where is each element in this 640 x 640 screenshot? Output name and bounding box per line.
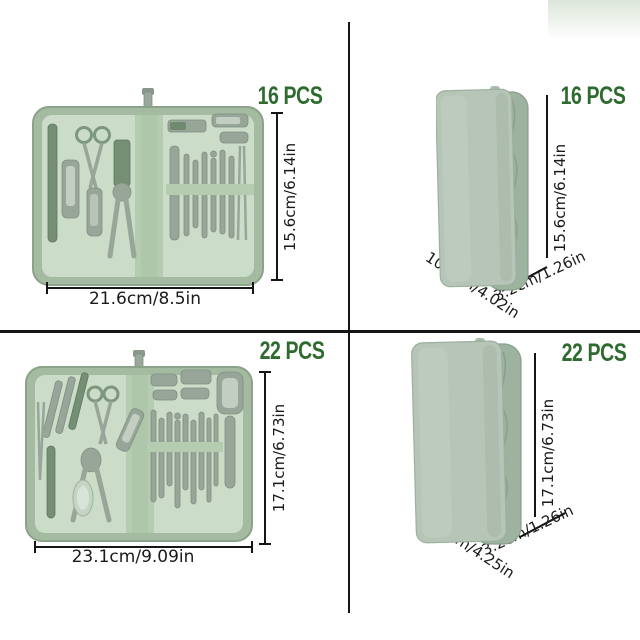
closed-case-16pcs-photo bbox=[436, 86, 532, 296]
width-dimension-label-open-16: 21.6cm/8.5in bbox=[65, 290, 225, 310]
dimension-tick bbox=[259, 371, 271, 373]
elastic-band bbox=[147, 442, 223, 452]
nail-file-tool bbox=[47, 446, 55, 518]
dimension-tick bbox=[259, 543, 271, 545]
nail-file-tool bbox=[48, 124, 57, 242]
piece-count-label-open-16: 16 PCS bbox=[259, 84, 321, 108]
nail-clipper-tool bbox=[220, 132, 248, 143]
nail-clipper-tool bbox=[62, 160, 79, 218]
dimension-tick bbox=[252, 282, 254, 294]
piece-count-label-closed-22: 22 PCS bbox=[563, 341, 625, 365]
quadrant-divider-vertical bbox=[348, 22, 350, 613]
height-dimension-label-closed-16: 15.6cm/6.14in bbox=[552, 133, 570, 263]
dimension-tick bbox=[46, 282, 48, 294]
product-measurement-image: 16 PCS 15.6cm/6.14in 21.6cm/8.5in 16 PCS… bbox=[0, 0, 640, 640]
open-case-16pcs-photo bbox=[32, 88, 264, 286]
open-case-22pcs-photo bbox=[25, 350, 253, 543]
dimension-tick bbox=[34, 541, 36, 553]
quadrant-divider-horizontal bbox=[0, 330, 640, 333]
height-dimension-line bbox=[276, 113, 278, 281]
dimension-tick bbox=[271, 279, 283, 281]
width-dimension-label-open-22: 23.1cm/9.09in bbox=[53, 548, 213, 568]
height-dimension-label-open-16: 15.6cm/6.14in bbox=[282, 132, 300, 262]
nail-clipper-tool bbox=[87, 188, 102, 236]
dimension-tick bbox=[251, 541, 253, 553]
elastic-band bbox=[166, 184, 254, 195]
dimension-tick bbox=[271, 112, 283, 114]
height-dimension-line bbox=[546, 95, 548, 258]
closed-case-22pcs-photo bbox=[411, 336, 525, 550]
background-wash bbox=[548, 0, 640, 40]
pusher-tool bbox=[114, 140, 130, 186]
piece-count-label-closed-16: 16 PCS bbox=[562, 84, 624, 108]
piece-count-label-open-22: 22 PCS bbox=[261, 339, 323, 363]
height-dimension-line bbox=[264, 372, 266, 545]
nail-clipper-tool bbox=[212, 114, 248, 127]
folding-knife-tool bbox=[168, 120, 206, 132]
height-dimension-line bbox=[534, 353, 536, 517]
height-dimension-label-open-22: 17.1cm/6.73in bbox=[271, 393, 289, 523]
height-dimension-label-closed-22: 17.1cm/6.73in bbox=[540, 388, 558, 518]
glass-file-tool bbox=[73, 480, 93, 516]
